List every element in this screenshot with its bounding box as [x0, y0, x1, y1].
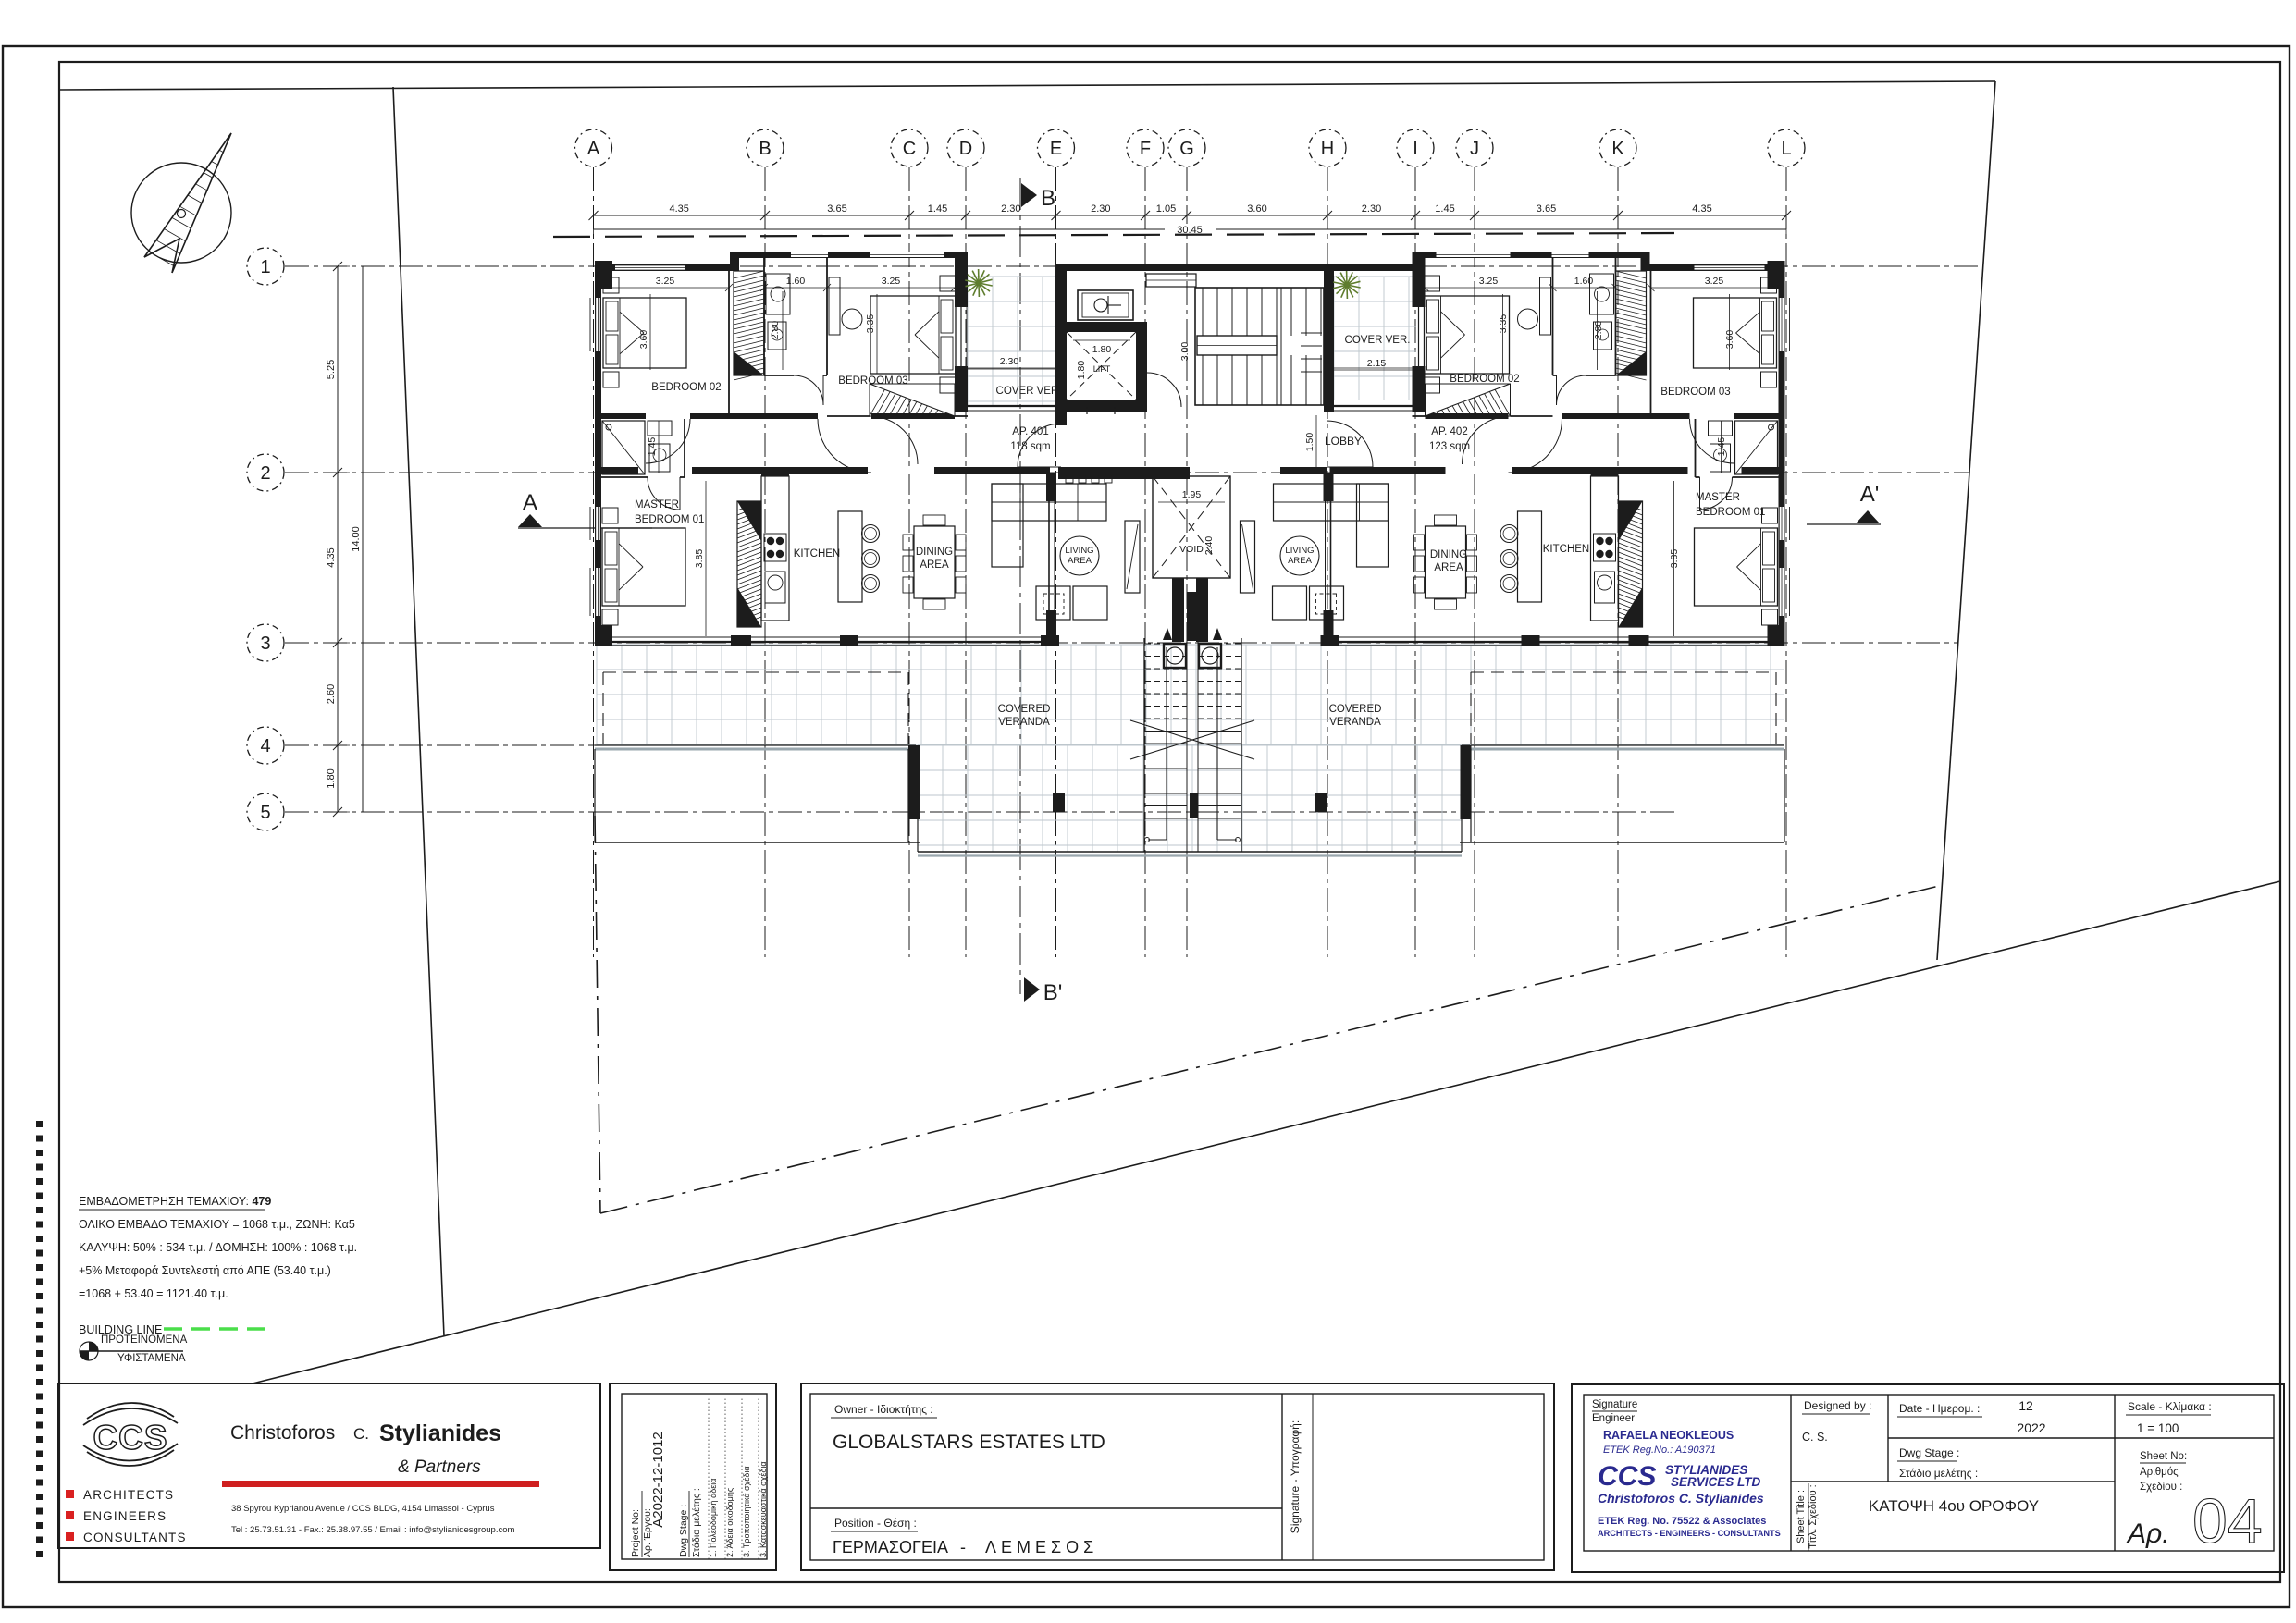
svg-text:2.80: 2.80 [770, 321, 781, 340]
svg-text:LIFT: LIFT [1093, 364, 1111, 374]
svg-text:Date - Ημερομ. :: Date - Ημερομ. : [1899, 1402, 1980, 1415]
svg-text:1.80: 1.80 [1092, 344, 1112, 355]
svg-text:COVERED: COVERED [998, 704, 1051, 715]
svg-text:BEDROOM 01: BEDROOM 01 [635, 514, 704, 525]
svg-text:B: B [1041, 186, 1055, 211]
svg-text:Tel : 25.73.51.31 - Fax.: 25: Tel : 25.73.51.31 - Fax.: 25.38.97.55 / … [231, 1525, 515, 1535]
svg-text:AP. 401: AP. 401 [1012, 426, 1048, 437]
svg-text:Scale - Κλίμακα :: Scale - Κλίμακα : [2128, 1400, 2212, 1413]
svg-text:A2022-12-1012: A2022-12-1012 [650, 1432, 666, 1527]
svg-text:I: I [1413, 139, 1418, 159]
svg-text:1 = 100: 1 = 100 [2137, 1421, 2179, 1435]
svg-text:KITCHEN: KITCHEN [1543, 544, 1589, 555]
svg-text:3. Τροποποιητικά σχέδια: 3. Τροποποιητικά σχέδια [742, 1466, 751, 1557]
svg-text:3.60: 3.60 [1724, 330, 1735, 350]
svg-text:1.45: 1.45 [1435, 203, 1454, 215]
svg-text:L: L [1781, 139, 1791, 159]
svg-text:Designed by :: Designed by : [1804, 1399, 1871, 1412]
svg-text:G: G [1179, 139, 1194, 159]
svg-text:ΛΕΜΕΣΟΣ: ΛΕΜΕΣΟΣ [985, 1538, 1098, 1556]
svg-text:ETEK Reg. No. 75522 & A: ETEK Reg. No. 75522 & Associates [1598, 1516, 1766, 1527]
svg-text:AREA: AREA [1068, 556, 1092, 566]
svg-text:1.80: 1.80 [1076, 361, 1087, 380]
svg-text:GLOBALSTARS ESTATES LTD: GLOBALSTARS ESTATES LTD [833, 1432, 1105, 1453]
svg-text:SERVICES LTD: SERVICES LTD [1671, 1475, 1761, 1489]
svg-text:=1068 + 53.40 = 1121.40 τ.μ.: =1068 + 53.40 = 1121.40 τ.μ. [79, 1287, 228, 1300]
svg-text:CCS: CCS [1598, 1461, 1656, 1492]
svg-text:12: 12 [2018, 1398, 2033, 1413]
svg-text:04: 04 [2192, 1486, 2263, 1556]
svg-text:3.65: 3.65 [827, 203, 846, 215]
svg-text:5: 5 [260, 803, 270, 823]
svg-text:3.85: 3.85 [694, 549, 705, 569]
svg-text:COVER VER.: COVER VER. [1345, 335, 1411, 346]
svg-text:3.35: 3.35 [1498, 314, 1509, 334]
svg-text:118 sqm: 118 sqm [1010, 441, 1050, 452]
svg-text:4.35: 4.35 [1692, 203, 1711, 215]
svg-text:A: A [523, 490, 537, 515]
svg-text:3.35: 3.35 [865, 314, 876, 334]
svg-text:DINING: DINING [1430, 549, 1467, 560]
svg-text:1.50: 1.50 [1304, 433, 1315, 452]
svg-text:Τίτλ. Σχεδίου :: Τίτλ. Σχεδίου : [1808, 1484, 1819, 1548]
svg-text:Signature - Υπογραφή:: Signature - Υπογραφή: [1289, 1420, 1302, 1533]
svg-text:1.95: 1.95 [1182, 489, 1202, 500]
svg-text:Στάδιο μελέτης :: Στάδιο μελέτης : [1899, 1467, 1978, 1480]
svg-text:1.60: 1.60 [786, 276, 806, 287]
svg-text:F: F [1140, 139, 1151, 159]
svg-text:2.40: 2.40 [1204, 536, 1215, 556]
svg-text:C: C [903, 139, 916, 159]
svg-text:& Partners: & Partners [398, 1457, 481, 1477]
svg-text:COVER VER.: COVER VER. [996, 386, 1062, 397]
svg-text:K: K [1611, 139, 1624, 159]
svg-text:3.60: 3.60 [1247, 203, 1266, 215]
svg-text:123 sqm: 123 sqm [1429, 441, 1470, 452]
svg-text:2: 2 [260, 463, 270, 484]
svg-text:Sheet Title :: Sheet Title : [1796, 1490, 1807, 1543]
svg-text:3.25: 3.25 [882, 276, 901, 287]
svg-text:COVERED: COVERED [1329, 704, 1382, 715]
svg-text:E: E [1050, 139, 1062, 159]
svg-text:A: A [587, 139, 600, 159]
svg-text:MASTER: MASTER [1696, 492, 1740, 503]
svg-text:3.60: 3.60 [638, 330, 649, 350]
svg-text:B: B [759, 139, 771, 159]
svg-text:LIVING: LIVING [1065, 546, 1093, 556]
svg-text:Sheet No:: Sheet No: [2140, 1451, 2187, 1462]
svg-text:1.45: 1.45 [647, 437, 658, 457]
svg-text:VERANDA: VERANDA [1329, 717, 1381, 728]
svg-text:3.65: 3.65 [1537, 203, 1556, 215]
svg-text:H: H [1321, 139, 1334, 159]
svg-text:Dwg Stage :: Dwg Stage : [678, 1505, 689, 1557]
svg-text:BEDROOM 03: BEDROOM 03 [838, 375, 907, 387]
svg-text:2.80: 2.80 [1593, 321, 1604, 340]
svg-text:Signature: Signature [1592, 1399, 1637, 1410]
svg-text:Owner - Ιδιοκτήτης :: Owner - Ιδιοκτήτης : [834, 1403, 933, 1416]
svg-text:Project No:: Project No: [630, 1509, 641, 1557]
svg-text:ΚΑΤΟΨΗ 4ου ΟΡΟΦΟΥ: ΚΑΤΟΨΗ 4ου ΟΡΟΦΟΥ [1869, 1497, 2039, 1515]
svg-text:Dwg Stage :: Dwg Stage : [1899, 1446, 1959, 1459]
svg-text:2.30: 2.30 [1000, 356, 1019, 367]
svg-text:BEDROOM 02: BEDROOM 02 [1450, 374, 1519, 385]
svg-text:3. Κατασκευαστικά σχέδια: 3. Κατασκευαστικά σχέδια [759, 1461, 768, 1557]
svg-text:RAFAELA NEOKLEOUS: RAFAELA NEOKLEOUS [1603, 1429, 1734, 1442]
svg-text:14.00: 14.00 [351, 526, 362, 552]
svg-text:Αρ.: Αρ. [2126, 1518, 2170, 1549]
svg-text:1.60: 1.60 [1574, 276, 1594, 287]
svg-text:3: 3 [260, 633, 270, 654]
svg-text:Στάδια μελέτης :: Στάδια μελέτης : [691, 1488, 702, 1557]
svg-text:1.80: 1.80 [326, 768, 337, 788]
svg-text:4.35: 4.35 [326, 547, 337, 567]
svg-text:KITCHEN: KITCHEN [794, 548, 840, 559]
svg-text:5.25: 5.25 [326, 360, 337, 379]
svg-text:3.00: 3.00 [1179, 342, 1191, 362]
svg-text:3.25: 3.25 [656, 276, 675, 287]
svg-text:2.15: 2.15 [1367, 358, 1387, 369]
svg-text:CCS: CCS [93, 1419, 167, 1457]
svg-text:ΟΛΙΚΟ ΕΜΒΑΔΟ ΤΕΜΑΧΙΟΥ = 1068 τ: ΟΛΙΚΟ ΕΜΒΑΔΟ ΤΕΜΑΧΙΟΥ = 1068 τ.μ., ΖΩΝΗ:… [79, 1218, 355, 1231]
svg-text:AREA: AREA [920, 559, 949, 571]
svg-text:2. Άδεια οικοδομής: 2. Άδεια οικοδομής [725, 1487, 734, 1557]
svg-text:LIVING: LIVING [1285, 546, 1314, 556]
svg-text:-: - [960, 1538, 966, 1556]
svg-text:ΥΦΙΣΤΑΜΕΝΑ: ΥΦΙΣΤΑΜΕΝΑ [117, 1353, 186, 1364]
svg-text:1.45: 1.45 [1716, 437, 1727, 457]
svg-text:Αριθμός: Αριθμός [2140, 1467, 2179, 1478]
svg-text:VOID: VOID [1179, 544, 1204, 555]
svg-text:3.25: 3.25 [1705, 276, 1724, 287]
svg-text:C. S.: C. S. [1802, 1431, 1828, 1444]
svg-text:3.25: 3.25 [1479, 276, 1499, 287]
svg-text:1.05: 1.05 [1156, 203, 1176, 215]
svg-text:Christoforos: Christoforos [230, 1422, 335, 1444]
svg-text:Position - Θέση :: Position - Θέση : [834, 1517, 917, 1530]
svg-text:Engineer: Engineer [1592, 1413, 1635, 1424]
svg-text:4.35: 4.35 [669, 203, 688, 215]
svg-text:BEDROOM 03: BEDROOM 03 [1660, 387, 1730, 398]
svg-text:2.30: 2.30 [1001, 203, 1020, 215]
svg-text:ΚΑΛΥΨΗ: 50% : 534 τ.μ. / ΔΟΜΗΣ: ΚΑΛΥΨΗ: 50% : 534 τ.μ. / ΔΟΜΗΣΗ: 100% : … [79, 1241, 357, 1254]
svg-text:AP. 402: AP. 402 [1431, 426, 1467, 437]
svg-text:Christoforos C. Stylianides: Christoforos C. Stylianides [1598, 1491, 1764, 1506]
svg-text:BEDROOM 02: BEDROOM 02 [651, 382, 721, 393]
svg-text:4: 4 [260, 736, 270, 756]
svg-text:+5% Μεταφορά Συντελεστή από ΑΠ: +5% Μεταφορά Συντελεστή από ΑΠΕ (53.40 τ… [79, 1264, 331, 1277]
svg-text:ΠΡΟΤΕΙΝΟΜΕΝΑ: ΠΡΟΤΕΙΝΟΜΕΝΑ [101, 1334, 188, 1346]
svg-text:Σχεδίου :: Σχεδίου : [2140, 1482, 2182, 1493]
svg-text:LOBBY: LOBBY [1325, 435, 1362, 448]
svg-text:D: D [959, 139, 972, 159]
svg-text:2.30: 2.30 [1362, 203, 1381, 215]
svg-text:B': B' [1043, 980, 1063, 1005]
svg-text:1.45: 1.45 [928, 203, 947, 215]
svg-text:ΓΕΡΜΑΣΟΓΕΙΑ: ΓΕΡΜΑΣΟΓΕΙΑ [833, 1538, 948, 1556]
svg-text:2022: 2022 [2017, 1420, 2045, 1435]
svg-text:2.30: 2.30 [1091, 203, 1110, 215]
svg-text:2.60: 2.60 [326, 684, 337, 704]
svg-text:ARCHITECTS: ARCHITECTS [83, 1488, 174, 1502]
svg-text:AREA: AREA [1288, 556, 1313, 566]
svg-text:3.85: 3.85 [1669, 549, 1680, 569]
svg-text:1: 1 [260, 257, 270, 277]
svg-text:AREA: AREA [1434, 562, 1463, 573]
svg-text:ETEK Reg.No.: A190371: ETEK Reg.No.: A190371 [1603, 1445, 1716, 1456]
svg-text:BEDROOM 01: BEDROOM 01 [1696, 507, 1765, 518]
svg-text:Stylianides: Stylianides [379, 1420, 501, 1446]
svg-text:ΕΜΒΑΔΟΜΕΤΡΗΣΗ ΤΕΜΑΧΙΟΥ: 479: ΕΜΒΑΔΟΜΕΤΡΗΣΗ ΤΕΜΑΧΙΟΥ: 479 [79, 1195, 271, 1208]
svg-text:ENGINEERS: ENGINEERS [83, 1509, 167, 1523]
svg-text:MASTER: MASTER [635, 499, 679, 510]
svg-text:DINING: DINING [916, 547, 953, 558]
svg-text:A': A' [1860, 482, 1880, 507]
svg-text:J: J [1470, 139, 1479, 159]
svg-text:1. Πολεοδομική άδεια: 1. Πολεοδομική άδεια [709, 1479, 718, 1558]
svg-text:ARCHITECTS - ENGINEERS - CONSU: ARCHITECTS - ENGINEERS - CONSULTANTS [1598, 1529, 1781, 1538]
svg-text:38 Spyrou Kyprianou Avenue /: 38 Spyrou Kyprianou Avenue / CCS BLDG, 4… [231, 1504, 495, 1514]
svg-text:CONSULTANTS: CONSULTANTS [83, 1531, 187, 1544]
svg-text:C.: C. [353, 1425, 369, 1443]
svg-text:VERANDA: VERANDA [998, 717, 1050, 728]
